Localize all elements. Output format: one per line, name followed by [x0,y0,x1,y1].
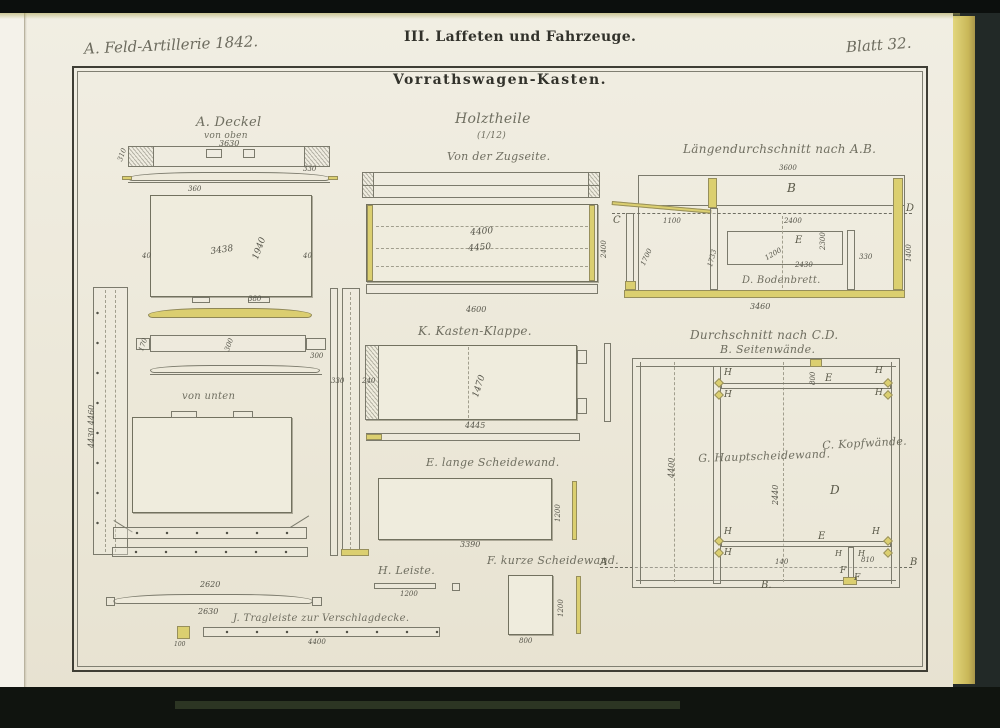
boden-rail-upper [113,527,307,539]
dim-100-tragleiste: 100 [174,642,185,648]
dim-2440: 2440 [772,485,780,505]
fig-klappe-title: K. Kasten-Klappe. [418,325,532,337]
klappe-edge-bar [604,343,611,422]
dim-2400-laengs: 2400 [784,218,802,225]
deckel-arc-tipR [328,176,338,180]
letter-H-ll: H [724,391,732,400]
laengs-floor [624,290,905,298]
plate-header: III. Laffeten und Fahrzeuge. [404,29,636,45]
dim-330-wand: 330 [331,378,344,385]
dim-4400-tragleiste: 4400 [308,639,326,646]
book-cover-right [975,0,1000,728]
zugseite-top-plank-mid [362,185,600,186]
dim-40-left: 40 [142,253,151,260]
dim-3390: 3390 [460,541,480,549]
letter-H-ul: H [724,369,732,378]
dim-2300: 2300 [820,232,827,250]
lange-scheidewand-panel [378,478,552,540]
leiste-bar [374,583,436,589]
dim-240-klappe: 240 [362,378,375,385]
letter-E-upper: E [825,374,832,384]
book-edge-top-highlight [0,13,960,19]
dim-4430-4460: 4430 4460 [88,405,96,448]
deckel-plank-tab2 [243,149,255,158]
cd-bar-upper [721,383,891,389]
boden-panel [132,417,292,513]
seitenwand-bar [342,288,360,556]
dim-800-cd: 800 [810,372,817,385]
laengs-postL [708,178,717,208]
dim-380-deckel: 380 [248,296,261,303]
seitenleiste-dash1 [105,290,106,552]
boden-rail-lower [112,547,308,557]
letter-H-ur: H [875,367,883,376]
fig-holztheile-scale: (1/12) [477,132,506,141]
dim-1400: 1400 [906,244,913,262]
letter-F-1: F [840,567,846,576]
letter-H-bl2: H [724,549,732,558]
unterzug-arc [113,594,313,604]
letter-E-laengs: E [795,236,802,246]
dim-1100: 1100 [663,218,681,225]
deckel-plank-top [128,146,330,167]
leiste-xsection [452,583,460,591]
fig-bodenbrett-title: D. Bodenbrett. [742,276,821,286]
klappe-notch1 [577,350,587,364]
dim-3630: 3630 [219,140,239,148]
letter-F-2: F [854,574,860,583]
rahmen-arc-base [150,374,322,375]
dim-2620: 2620 [200,581,220,589]
page-fold-line [24,13,27,690]
dim-3460: 3460 [750,303,770,311]
fig-laengsschnitt-title: Längendurchschnitt nach A.B. [683,143,876,155]
dim-810: 810 [861,557,874,564]
kurze-scheidewand-strip [576,576,581,634]
letter-C-laengs: C [613,216,621,226]
fig-deckel-title: A. Deckel [196,116,261,129]
cd-bar-lower [721,541,891,547]
deckel-plank-capR [304,146,330,167]
dim-1200-lange: 1200 [555,504,562,522]
zugseite-stripR [589,205,595,281]
book-edge-bottom-highlight [175,701,680,709]
kurze-scheidewand-panel [508,575,553,635]
fig-seitenwaende-title: B. Seitenwände. [720,344,815,355]
fig-lange-title: E. lange Scheidewand. [426,457,560,468]
dim-4600: 4600 [466,306,486,314]
dim-40-right: 40 [303,253,312,260]
letter-D-cd: D [830,484,840,496]
fig-zugseite-title: Von der Zugseite. [447,151,550,162]
boden-notch1 [171,411,197,418]
dim-2630: 2630 [198,608,218,616]
fig-durchschnitt-title: Durchschnitt nach C.D. [690,329,839,341]
laengs-wallR [893,178,903,290]
plate-title: Vorrathswagen-Kasten. [393,72,607,88]
letter-B-laengs: B [787,182,796,194]
fig-tragleiste-title: J. Tragleiste zur Verschlagdecke. [233,614,409,624]
unterzug-hookR [312,597,322,606]
zugseite-stripL [367,205,373,281]
tragleiste-bar [203,627,440,637]
seitenwand-strip [330,288,338,556]
laengs-wallL [626,213,634,290]
cd-top-inner [636,366,896,367]
deckel-plank-capL [128,146,154,167]
dim-300-right: 300 [310,353,323,360]
cd-dash-right [783,362,784,582]
page-gilt-edge-right [953,16,975,684]
letter-A-line: A [600,558,607,568]
tragleiste-xsection [177,626,190,639]
dim-360: 360 [188,186,201,193]
fig-von-unten: von unten [182,392,235,402]
cd-section-line [612,213,912,214]
rahmen-plank-capR [306,338,326,350]
dim-2430: 2430 [795,262,813,269]
deckel-arc-under [148,308,312,318]
cd-left-inner [640,362,641,584]
letter-H-bl1: H [724,528,732,537]
zugseite-bottom-plank [366,284,598,294]
seitenwand-dash [350,292,351,550]
fig-leiste-title: H. Leiste. [378,565,435,576]
seitenleiste-dash2 [115,290,116,552]
dim-4400-cd: 4400 [668,458,676,478]
book-edge-top [0,0,1000,13]
zugseite-top-capR [588,172,600,198]
laengs-wallL-foot [625,281,636,290]
zugseite-top-capL [362,172,374,198]
laengs-post2 [847,230,855,290]
klappe-lower-tip [366,434,382,440]
rahmen-arc [150,365,320,373]
letter-H-lr: H [875,389,883,398]
dim-1200-kurze: 1200 [558,599,565,617]
klappe-lower-bar [366,433,580,441]
dim-330-laengs: 330 [859,254,872,261]
klappe-dash [468,347,469,418]
dim-800-kurze: 800 [519,638,532,645]
fig-holztheile-title: Holztheile [455,112,531,126]
boden-notch2 [233,411,253,418]
dim-3600: 3600 [779,165,797,172]
deckel-arc-tipL [122,176,132,180]
klappe-notch2 [577,398,587,414]
lange-scheidewand-strip [572,481,577,540]
letter-H-post1: H [835,550,842,558]
letter-B-bottom: B. [761,581,772,591]
klappe-panel [365,345,577,420]
letter-E-lower: E [818,532,825,542]
zugseite-dash3 [376,266,588,267]
dim-1200-leiste: 1200 [400,591,418,598]
book-pages-left-edge [0,13,25,690]
deckel-arc-base [128,182,330,183]
deckel-panel-tab1 [192,297,210,303]
dim-140: 140 [775,559,788,566]
deckel-plank-tab1 [206,149,222,158]
dim-4445: 4445 [465,422,485,430]
unterzug-hookL [106,597,115,606]
letter-H-br1: H [872,528,880,537]
scanned-plate: A. Feld-Artillerie 1842. III. Laffeten u… [0,0,1000,728]
letter-B-line: B [910,558,917,568]
dim-2400-zug: 2400 [601,240,608,258]
deckel-arc-side [128,172,330,181]
letter-D-laengs: D [906,204,914,214]
cd-top-yellow [810,359,822,367]
dim-330-deckel: 330 [303,166,316,173]
seitenwand-tip [341,549,369,556]
